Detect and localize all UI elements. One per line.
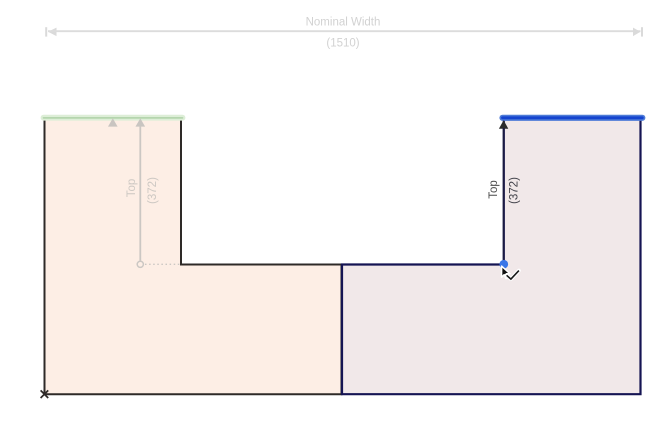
svg-text:(1510): (1510) xyxy=(326,38,359,50)
svg-text:(372): (372) xyxy=(509,177,521,204)
svg-text:Top: Top xyxy=(126,179,138,198)
svg-text:Nominal Width: Nominal Width xyxy=(306,17,381,29)
svg-text:(372): (372) xyxy=(147,177,159,204)
svg-text:Top: Top xyxy=(488,180,500,199)
